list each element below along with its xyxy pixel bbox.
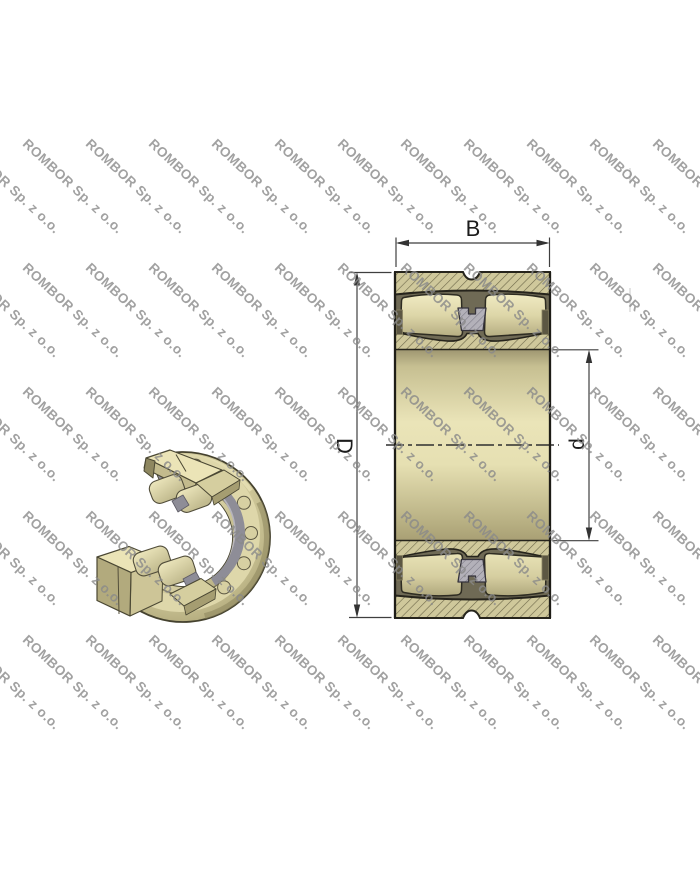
arrowhead	[354, 272, 360, 285]
roller	[485, 553, 547, 595]
catalog-product-image: B D d ROMBOR Sp. z o.o.ROMBOR Sp. z o.o.…	[0, 0, 700, 869]
bearing-technical-drawing	[0, 0, 700, 869]
iso-cutaway-view	[97, 450, 270, 622]
arrowhead	[354, 605, 360, 618]
cross-section-view	[386, 272, 559, 618]
dimension-label-d: d	[566, 438, 590, 450]
arrowhead	[396, 240, 409, 246]
arrowhead	[586, 528, 592, 541]
roller	[401, 294, 463, 336]
roller	[401, 553, 463, 595]
dimension-label-B: B	[466, 216, 481, 242]
roller	[485, 294, 547, 336]
dimension-label-D: D	[331, 438, 357, 454]
arrowhead	[537, 240, 550, 246]
arrowhead	[586, 350, 592, 363]
